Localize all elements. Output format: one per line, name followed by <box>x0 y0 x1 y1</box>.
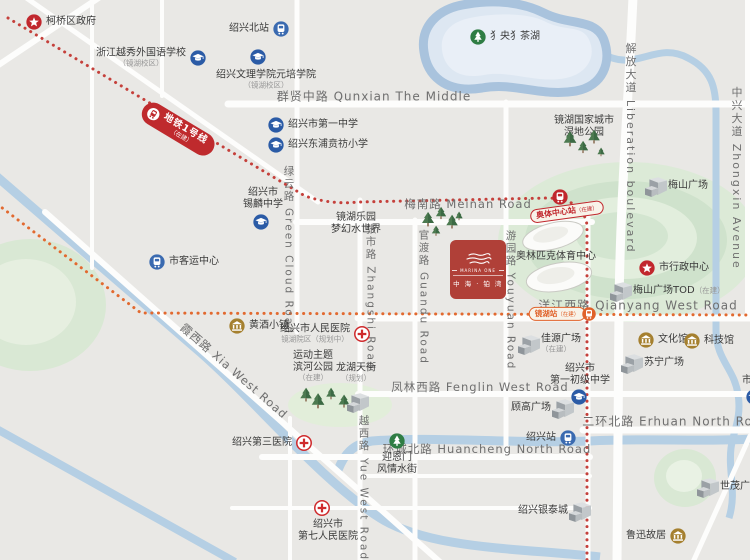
poi-yingenmen-street-label: 迎恩门 <box>382 452 412 463</box>
pine-tree-icon <box>325 386 336 405</box>
poi-jiayuan-plaza-sub: （在建） <box>541 345 581 354</box>
poi-wenli-college-label: 绍兴文理学院元培学院 <box>216 70 316 81</box>
poi-yingenmen-street-label: 风情水街 <box>377 464 417 475</box>
markers-layer: 群贤中路 Qunxian The Middle梅南路 Meinan Road洋江… <box>0 0 750 560</box>
poi-admin-center-label: 市行政中心 <box>659 262 709 273</box>
poi-longhu-tianjie-sub: （规划） <box>336 374 376 383</box>
treec-icon-yingenmen-street[interactable] <box>389 433 406 450</box>
school-icon-yuexiu-school[interactable] <box>190 50 207 67</box>
road-label-3: 凤林西路 Fenglin West Road <box>391 379 568 395</box>
poi-renmin-hospital-sub: 镜湖院区（规划中） <box>280 335 350 344</box>
poi-wetland-park-label: 镜湖国家城市 <box>554 115 614 126</box>
building-icon-gugao-plaza <box>551 397 576 419</box>
hospital-icon-renmin-hospital[interactable] <box>354 326 371 343</box>
logo-brand-en: MARINA ONE <box>460 268 496 273</box>
poi-renmin-hospital[interactable]: 绍兴市人民医院镜湖院区（规划中） <box>280 324 350 345</box>
poi-yuexiu-school[interactable]: 浙江越秀外国语学校（镜湖校区） <box>96 48 186 69</box>
poi-suning-plaza-label: 苏宁广场 <box>644 357 684 368</box>
train-icon <box>144 105 162 123</box>
hospital-icon-seventh-hospital[interactable] <box>314 500 331 517</box>
poi-third-hospital-label: 绍兴第三医院 <box>232 437 292 448</box>
road-label-1: 梅南路 Meinan Road <box>404 196 531 212</box>
poi-renmin-hospital-label: 绍兴市人民医院 <box>280 324 350 335</box>
school-icon-wenli-college[interactable] <box>250 49 267 66</box>
poi-dongpu-primary-label: 绍兴东浦贲祊小学 <box>288 139 368 150</box>
waves-icon <box>464 252 492 266</box>
aoti-station-status: （在建） <box>576 206 599 215</box>
poi-shaoxing-station-label: 绍兴站 <box>526 432 556 443</box>
school-icon-xilin-middle-school[interactable] <box>253 214 270 231</box>
jinghu-station-status: （在建） <box>557 312 579 318</box>
logo-brand-cn: 中 海 · 铂 湾 <box>453 275 503 288</box>
road-label-9: 官渡路 Guandu Road <box>417 229 432 365</box>
poi-jinghu-waterpark[interactable]: 镜湖乐园梦幻水世界 <box>331 212 381 236</box>
poi-olympic-center-label: 奥林匹克体育中心 <box>516 251 596 262</box>
pine-tree-icon <box>431 222 441 241</box>
poi-yingenmen-street[interactable]: 迎恩门风情水街 <box>377 452 417 476</box>
poi-third-hospital[interactable]: 绍兴第三医院 <box>232 437 292 449</box>
poi-gugao-plaza-label: 顾高广场 <box>511 402 551 413</box>
poi-no1-junior-school-label: 第一初级中学 <box>550 375 610 386</box>
poi-jinghu-waterpark-label: 镜湖乐园 <box>336 212 376 223</box>
poi-longhu-tianjie[interactable]: 龙湖天街（规划） <box>336 363 376 384</box>
poi-science-hall[interactable]: 科技馆 <box>704 335 734 347</box>
bank-icon-huangjiu-town[interactable] <box>229 318 246 335</box>
poi-passenger-center-label: 市客运中心 <box>169 256 219 267</box>
poi-longhu-tianjie-label: 龙湖天街 <box>336 363 376 374</box>
poi-meishan-plaza-label: 梅山广场 <box>668 180 708 191</box>
poi-keqiao-government[interactable]: 柯桥区政府 <box>46 16 96 28</box>
poi-dongpu-primary[interactable]: 绍兴东浦贲祊小学 <box>288 139 368 151</box>
poi-gugao-plaza[interactable]: 顾高广场 <box>511 402 551 414</box>
poi-seventh-hospital-label: 绍兴市 <box>313 519 343 530</box>
building-icon-shimao-plaza <box>696 476 721 498</box>
road-label-11: 越西路 Yue West Road <box>357 415 372 560</box>
aoti-station-label: 奥体中心站 <box>536 206 577 220</box>
aoti-station-icon[interactable] <box>552 189 569 206</box>
poi-shaoxing-station[interactable]: 绍兴站 <box>526 432 556 444</box>
pine-tree-icon <box>455 206 463 225</box>
poi-jiayuan-plaza[interactable]: 佳源广场（在建） <box>541 334 581 355</box>
poi-edge-partial[interactable]: 市 <box>742 375 750 387</box>
poi-no1-junior-school-label: 绍兴市 <box>565 363 595 374</box>
pine-tree-icon <box>311 392 326 414</box>
road-label-4: 二环北路 Erhuan North Road <box>582 413 750 430</box>
bank-icon-science-hall[interactable] <box>684 333 701 350</box>
poi-xilin-middle-school-label: 绍兴市 <box>248 187 278 198</box>
poi-jiayuan-plaza-label: 佳源广场 <box>541 334 581 345</box>
poi-xilin-middle-school[interactable]: 绍兴市锡麟中学 <box>243 187 283 211</box>
road-label-7: 绿云路 Green Cloud Road <box>282 165 297 335</box>
pine-tree-icon <box>597 142 605 161</box>
poi-no1-middle-school-label: 绍兴市第一中学 <box>288 119 358 130</box>
poi-wenli-college-sub: （镜湖校区） <box>216 81 316 90</box>
poi-meishan-tod-label: 梅山广场TOD <box>633 285 695 296</box>
poi-seventh-hospital-label: 第七人民医院 <box>298 531 358 542</box>
poi-shaoxing-north-sta[interactable]: 绍兴北站 <box>229 23 269 35</box>
poi-suning-plaza[interactable]: 苏宁广场 <box>644 357 684 369</box>
building-icon-jiayuan-plaza <box>517 333 542 355</box>
poi-angsang-lake-label: 犭央犭茶湖 <box>490 31 540 42</box>
poi-jinghu-waterpark-label: 梦幻水世界 <box>331 224 381 235</box>
building-icon-yintai-city <box>568 500 593 522</box>
poi-yintai-city[interactable]: 绍兴银泰城 <box>518 505 568 517</box>
poi-no1-middle-school[interactable]: 绍兴市第一中学 <box>288 119 358 131</box>
school-icon-dongpu-primary[interactable] <box>268 137 285 154</box>
pine-tree-icon <box>563 130 578 152</box>
treec-icon-angsang-lake[interactable] <box>470 29 487 46</box>
hospital-icon-third-hospital[interactable] <box>296 435 313 452</box>
poi-edge-partial-label: 市 <box>742 375 750 386</box>
road-label-8: 张市路 Zhangshi Road <box>364 223 379 370</box>
poi-meishan-plaza[interactable]: 梅山广场 <box>668 180 708 192</box>
poi-meishan-tod[interactable]: 梅山广场TOD（在建） <box>633 285 725 297</box>
poi-luxun-residence[interactable]: 鲁迅故居 <box>626 530 666 542</box>
jinghu-station-icon[interactable] <box>582 307 597 322</box>
poi-olympic-center[interactable]: 奥林匹克体育中心 <box>516 251 596 263</box>
poi-shimao-plaza[interactable]: 世茂广场 <box>720 481 750 493</box>
location-map: 群贤中路 Qunxian The Middle梅南路 Meinan Road洋江… <box>0 0 750 560</box>
road-label-6: 霞西路 Xia West Road <box>177 320 291 422</box>
poi-yuexiu-school-sub: （镜湖校区） <box>96 59 186 68</box>
bank-icon-luxun-residence[interactable] <box>670 528 687 545</box>
poi-luxun-residence-label: 鲁迅故居 <box>626 530 666 541</box>
poi-admin-center[interactable]: 市行政中心 <box>659 262 709 274</box>
poi-sports-river-park-label: 运动主题 <box>293 350 333 361</box>
poi-science-hall-label: 科技馆 <box>704 335 734 346</box>
metro-icon-passenger-center[interactable] <box>149 254 166 271</box>
poi-angsang-lake[interactable]: 犭央犭茶湖 <box>490 31 540 43</box>
poi-wenli-college[interactable]: 绍兴文理学院元培学院（镜湖校区） <box>216 70 316 91</box>
poi-xilin-middle-school-label: 锡麟中学 <box>243 199 283 210</box>
building-icon-suning-plaza <box>620 352 645 374</box>
poi-passenger-center[interactable]: 市客运中心 <box>169 256 219 268</box>
poi-keqiao-government-label: 柯桥区政府 <box>46 16 96 27</box>
building-icon-decor-0 <box>346 391 371 413</box>
project-logo[interactable]: MARINA ONE 中 海 · 铂 湾 <box>450 240 506 299</box>
poi-sports-river-park[interactable]: 运动主题滨河公园（在建） <box>293 350 333 382</box>
star-icon-admin-center[interactable] <box>639 260 656 277</box>
metro-icon-shaoxing-north-sta[interactable] <box>273 21 290 38</box>
jinghu-station-pill[interactable]: 镜湖站（在建） <box>529 307 586 321</box>
school-icon-no1-middle-school[interactable] <box>268 117 285 134</box>
building-icon-meishan-plaza <box>644 175 669 197</box>
school-icon-edge-partial[interactable] <box>746 389 750 406</box>
road-label-12: 解放大道 Liberation boulevard <box>622 42 638 253</box>
poi-no1-junior-school[interactable]: 绍兴市第一初级中学 <box>550 363 610 387</box>
poi-shimao-plaza-label: 世茂广场 <box>720 481 750 492</box>
star-icon-keqiao-government[interactable] <box>26 14 43 31</box>
jinghu-station-label: 镜湖站 <box>535 309 558 318</box>
road-label-13: 中兴大道 Zhongxin Avenue <box>728 86 744 270</box>
building-icon-meishan-tod <box>609 280 634 302</box>
poi-sports-river-park-sub: （在建） <box>293 373 333 382</box>
bank-icon-culture-hall[interactable] <box>638 332 655 349</box>
poi-yuexiu-school-label: 浙江越秀外国语学校 <box>96 48 186 59</box>
poi-meishan-tod-sub: （在建） <box>695 286 725 295</box>
poi-sports-river-park-label: 滨河公园 <box>293 362 333 373</box>
poi-shaoxing-north-sta-label: 绍兴北站 <box>229 23 269 34</box>
poi-seventh-hospital[interactable]: 绍兴市第七人民医院 <box>298 519 358 543</box>
metro-icon-shaoxing-station[interactable] <box>560 430 577 447</box>
poi-yintai-city-label: 绍兴银泰城 <box>518 505 568 516</box>
